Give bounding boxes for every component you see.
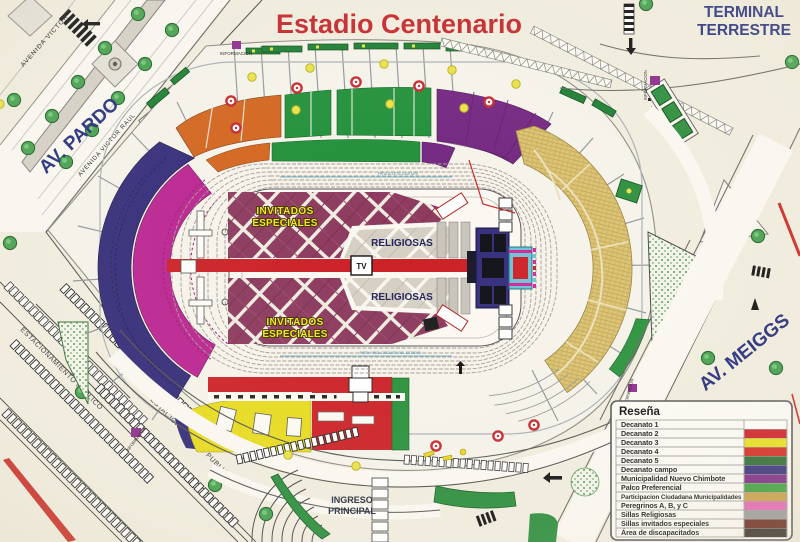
svg-text:TERMINAL: TERMINAL — [704, 4, 784, 21]
svg-text:Decanato 4: Decanato 4 — [621, 447, 658, 456]
svg-text:Peregrinos A, B, y C: Peregrinos A, B, y C — [621, 501, 688, 510]
svg-text:Área de discapacitados: Área de discapacitados — [621, 528, 699, 537]
svg-text:INVITADOS: INVITADOS — [266, 317, 323, 328]
svg-text:Sillas Religiosas: Sillas Religiosas — [621, 510, 676, 519]
svg-text:PRINCIPAL: PRINCIPAL — [328, 506, 376, 516]
svg-text:Estadio Centenario: Estadio Centenario — [276, 9, 522, 39]
svg-text:TERRESTRE: TERRESTRE — [697, 22, 791, 39]
svg-text:Sillas invitados especiales: Sillas invitados especiales — [621, 519, 709, 528]
svg-text:INVITADOS: INVITADOS — [256, 206, 313, 217]
svg-text:RELIGIOSAS: RELIGIOSAS — [371, 238, 433, 249]
svg-text:PISTA ATLETICA 400 MTS: PISTA ATLETICA 400 MTS — [378, 172, 419, 176]
svg-text:Decanato 2: Decanato 2 — [621, 429, 658, 438]
svg-text:INFORMACION: INFORMACION — [643, 70, 648, 100]
svg-text:TV: TV — [356, 262, 367, 271]
svg-text:ESPECIALES: ESPECIALES — [262, 329, 327, 340]
svg-text:INFORMACION: INFORMACION — [220, 51, 252, 56]
svg-text:Decanato 5: Decanato 5 — [621, 456, 658, 465]
svg-text:ESPECIALES: ESPECIALES — [252, 218, 317, 229]
svg-text:Municipalidad Nuevo Chimbote: Municipalidad Nuevo Chimbote — [621, 474, 725, 483]
svg-text:PISTA Y RIEL CIRCUITO DEL ESTA: PISTA Y RIEL CIRCUITO DEL ESTADIO — [359, 351, 420, 355]
svg-text:Decanato 1: Decanato 1 — [621, 420, 658, 429]
svg-text:Decanato campo: Decanato campo — [621, 465, 678, 474]
svg-text:RELIGIOSAS: RELIGIOSAS — [371, 292, 433, 303]
svg-text:Participacion Ciudadana Munici: Participacion Ciudadana Municipalidades — [621, 494, 742, 501]
svg-text:Palco Preferencial: Palco Preferencial — [621, 483, 682, 492]
svg-text:Reseña: Reseña — [619, 406, 661, 418]
svg-text:INGRESO: INGRESO — [331, 495, 373, 505]
svg-text:Decanato 3: Decanato 3 — [621, 438, 658, 447]
